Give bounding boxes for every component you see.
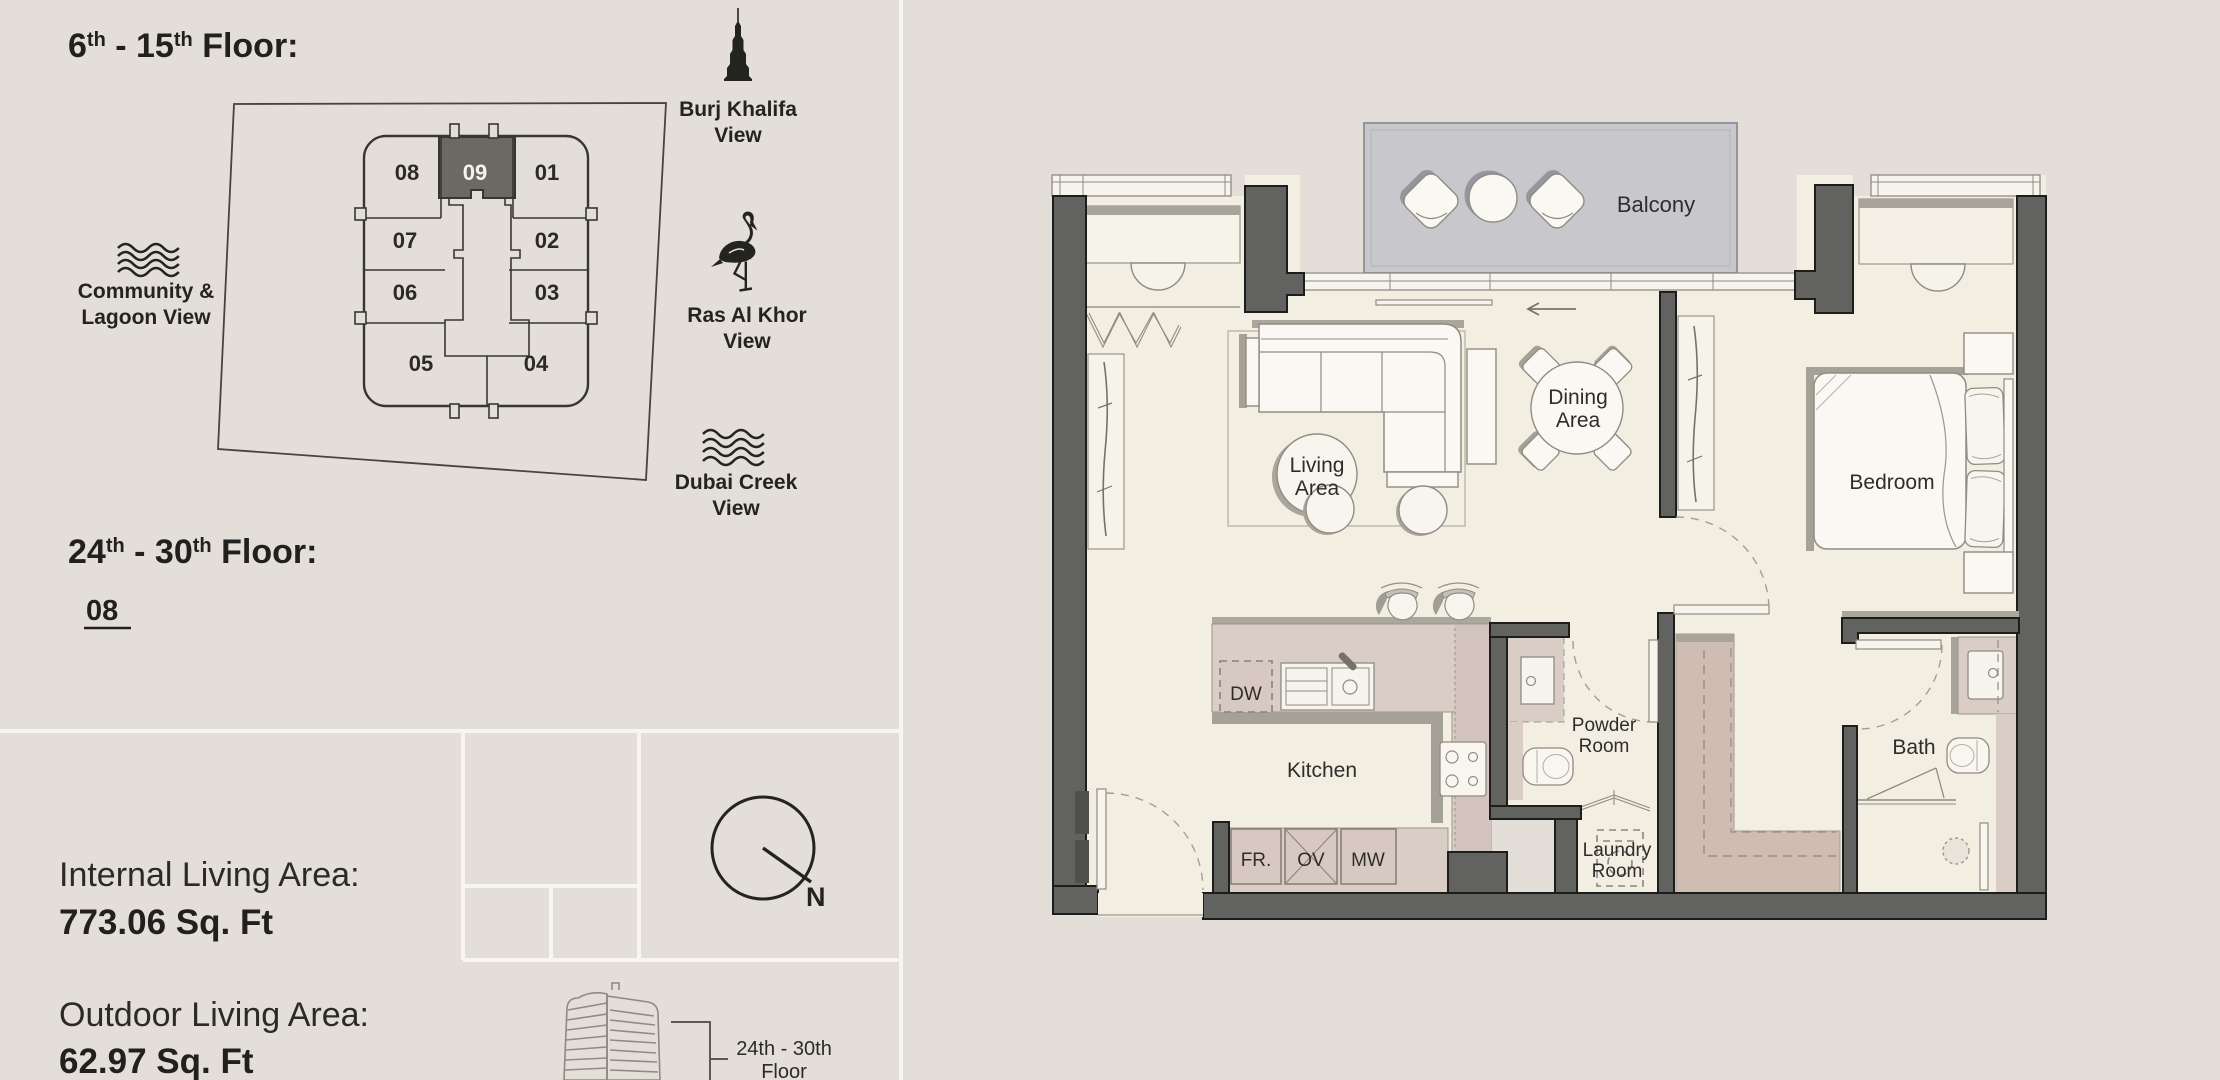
svg-text:09: 09 (463, 160, 487, 185)
svg-text:Kitchen: Kitchen (1287, 759, 1357, 782)
svg-text:06: 06 (393, 280, 417, 305)
svg-text:Living: Living (1290, 454, 1345, 477)
svg-text:Laundry: Laundry (1583, 840, 1652, 861)
svg-text:Dubai Creek: Dubai Creek (675, 471, 798, 494)
svg-text:Outdoor Living Area:: Outdoor Living Area: (59, 996, 369, 1034)
svg-text:Bedroom: Bedroom (1849, 471, 1934, 494)
svg-text:Balcony: Balcony (1617, 192, 1695, 217)
svg-text:Area: Area (1295, 477, 1340, 500)
svg-text:Room: Room (1592, 861, 1643, 882)
svg-text:62.97 Sq. Ft: 62.97 Sq. Ft (59, 1042, 254, 1080)
svg-text:OV: OV (1297, 850, 1325, 871)
svg-text:Dining: Dining (1548, 386, 1608, 409)
svg-text:Room: Room (1579, 736, 1630, 757)
svg-text:08: 08 (86, 595, 118, 627)
svg-text:View: View (723, 330, 771, 353)
svg-text:Lagoon View: Lagoon View (81, 306, 211, 329)
svg-text:MW: MW (1351, 850, 1385, 871)
svg-text:Area: Area (1556, 409, 1601, 432)
svg-text:View: View (712, 497, 760, 520)
svg-text:FR.: FR. (1241, 850, 1272, 871)
svg-text:02: 02 (535, 228, 559, 253)
svg-text:Burj Khalifa: Burj Khalifa (679, 98, 797, 121)
svg-text:24th - 30th Floor:: 24th - 30th Floor: (68, 533, 317, 571)
svg-text:01: 01 (535, 160, 559, 185)
svg-text:Powder: Powder (1572, 715, 1637, 736)
svg-text:N: N (806, 882, 826, 912)
svg-text:Community &: Community & (78, 280, 215, 303)
svg-text:05: 05 (409, 351, 433, 376)
svg-text:08: 08 (395, 160, 419, 185)
svg-text:773.06 Sq. Ft: 773.06 Sq. Ft (59, 903, 273, 942)
svg-text:DW: DW (1230, 684, 1262, 705)
svg-text:24th - 30th: 24th - 30th (736, 1038, 832, 1060)
svg-text:03: 03 (535, 280, 559, 305)
svg-text:Bath: Bath (1892, 736, 1935, 759)
svg-text:04: 04 (524, 351, 549, 376)
svg-text:Internal Living Area:: Internal Living Area: (59, 856, 360, 894)
svg-text:Floor: Floor (761, 1061, 807, 1080)
svg-text:View: View (714, 124, 762, 147)
svg-text:Ras Al Khor: Ras Al Khor (687, 304, 806, 327)
svg-text:6th - 15th Floor:: 6th - 15th Floor: (68, 27, 299, 65)
svg-text:07: 07 (393, 228, 417, 253)
